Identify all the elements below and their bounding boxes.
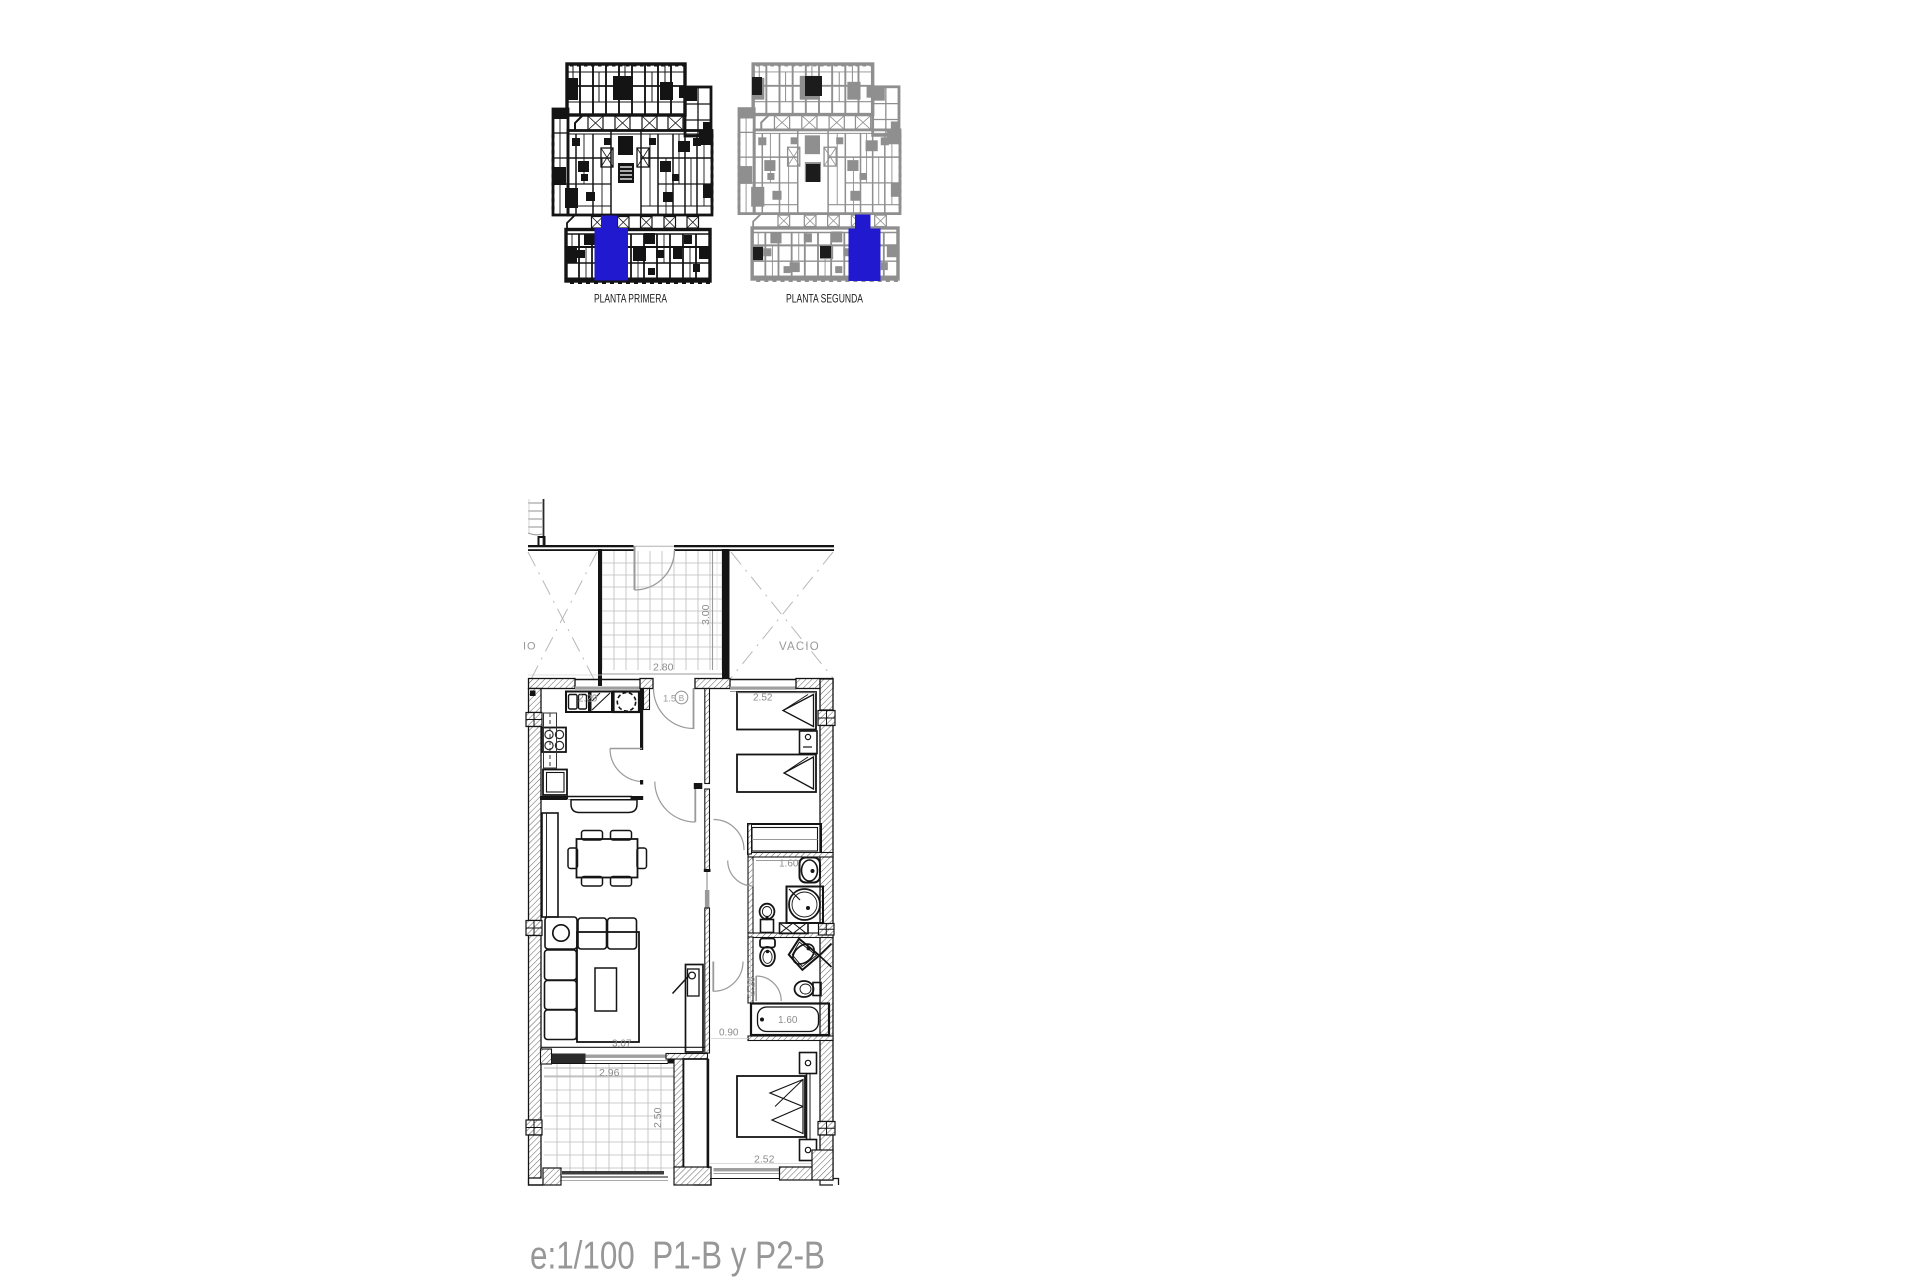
svg-text:VACIO: VACIO [779, 641, 820, 653]
svg-text:2.52: 2.52 [753, 693, 773, 704]
svg-text:PLANTA SEGUNDA: PLANTA SEGUNDA [786, 294, 863, 306]
svg-text:0.90: 0.90 [719, 1028, 739, 1039]
svg-text:1.60: 1.60 [778, 1015, 798, 1026]
svg-text:2.29: 2.29 [578, 694, 598, 705]
svg-text:PLANTA PRIMERA: PLANTA PRIMERA [594, 294, 667, 306]
svg-text:2.50: 2.50 [652, 1107, 664, 1128]
svg-text:1.5: 1.5 [663, 694, 676, 705]
svg-text:B: B [679, 694, 685, 703]
svg-text:2.80: 2.80 [653, 662, 674, 674]
svg-text:3.00: 3.00 [700, 604, 712, 625]
svg-text:e:1/100 P1-B y P2-B: e:1/100 P1-B y P2-B [530, 1235, 825, 1278]
svg-text:IO: IO [523, 641, 537, 653]
svg-text:2.96: 2.96 [599, 1067, 620, 1079]
